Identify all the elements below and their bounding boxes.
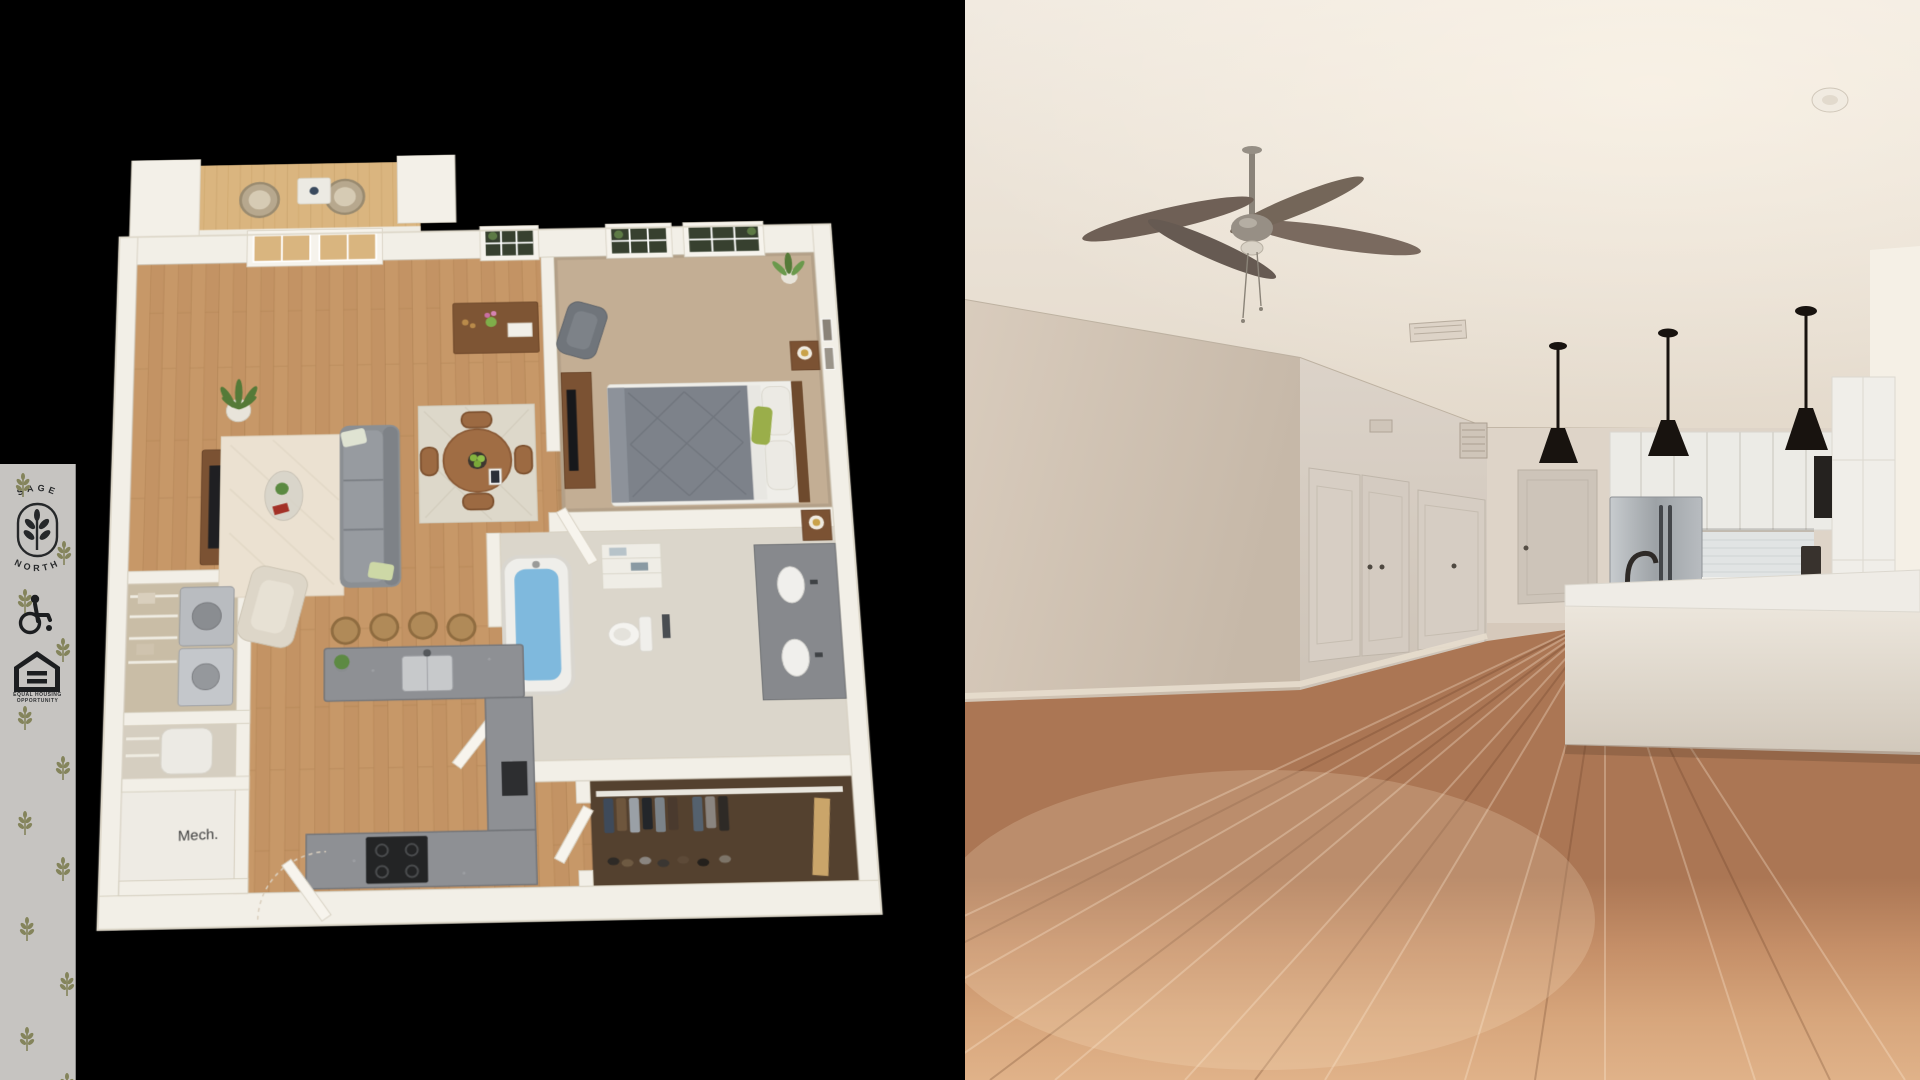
bar-counter [1565, 570, 1920, 764]
nightstand [790, 341, 820, 370]
bed [607, 381, 810, 506]
linen-shelf [601, 543, 662, 589]
wall-art [822, 319, 833, 341]
wall-vent [1370, 420, 1392, 432]
sage-sprig-icon [19, 1026, 35, 1052]
sage-sprig-icon [56, 540, 72, 566]
hall-door [1418, 490, 1485, 650]
svg-text:NORTH: NORTH [13, 557, 62, 573]
patio-chair [240, 183, 278, 218]
sage-sprig-icon [17, 588, 33, 614]
sage-leaf-icon [22, 509, 52, 550]
sage-sprig-icon [55, 755, 71, 781]
vanity [754, 543, 846, 700]
sage-north-logo: SAGE NORTH [0, 468, 75, 590]
bedroom-dresser [561, 372, 595, 488]
door-handle [1380, 565, 1385, 570]
sage-sprig-icon [59, 1072, 75, 1080]
equal-housing-text: EQUAL HOUSING OPPORTUNITY [0, 692, 75, 704]
oven [501, 761, 527, 796]
listing-media-view: Mech. SAGE [0, 0, 1920, 1080]
left-wall [965, 300, 1300, 704]
floorplan-3d-render: Mech. [70, 147, 910, 965]
door-handle [1368, 565, 1373, 570]
towel [662, 614, 671, 638]
microwave [1814, 456, 1832, 518]
wall-art [824, 347, 835, 369]
sage-sprig-icon [15, 472, 31, 498]
dining-area [418, 404, 537, 523]
door-handle [1524, 546, 1529, 551]
ceiling-vent [1409, 320, 1466, 342]
mech-room-label: Mech. [178, 826, 219, 845]
unit-photo[interactable] [965, 0, 1920, 1080]
balcony [129, 155, 456, 242]
console-desk [453, 302, 539, 354]
return-air-grille [1460, 423, 1487, 458]
sofa [340, 425, 402, 588]
sage-sprig-icon [19, 916, 35, 942]
nightstand [801, 510, 832, 541]
coffee-table [265, 471, 303, 521]
sage-sprig-icon [17, 810, 33, 836]
door-handle [1452, 564, 1457, 569]
floorplan-panel[interactable]: Mech. [0, 0, 965, 1080]
sage-sprig-icon [59, 971, 75, 997]
sage-sprig-icon [55, 856, 71, 882]
patio-chair [326, 179, 364, 214]
smoke-detector [1812, 88, 1848, 112]
fan-light [1241, 241, 1263, 255]
sage-sprig-icon [55, 637, 71, 663]
range [366, 836, 428, 884]
patio-table [298, 178, 331, 204]
branding-sidebar: SAGE NORTH [0, 464, 76, 1080]
ironing-board [812, 798, 830, 876]
logo-name-bottom: NORTH [13, 557, 62, 573]
water-heater [161, 728, 213, 774]
refrigerator [1610, 497, 1702, 593]
sage-sprig-icon [17, 705, 33, 731]
